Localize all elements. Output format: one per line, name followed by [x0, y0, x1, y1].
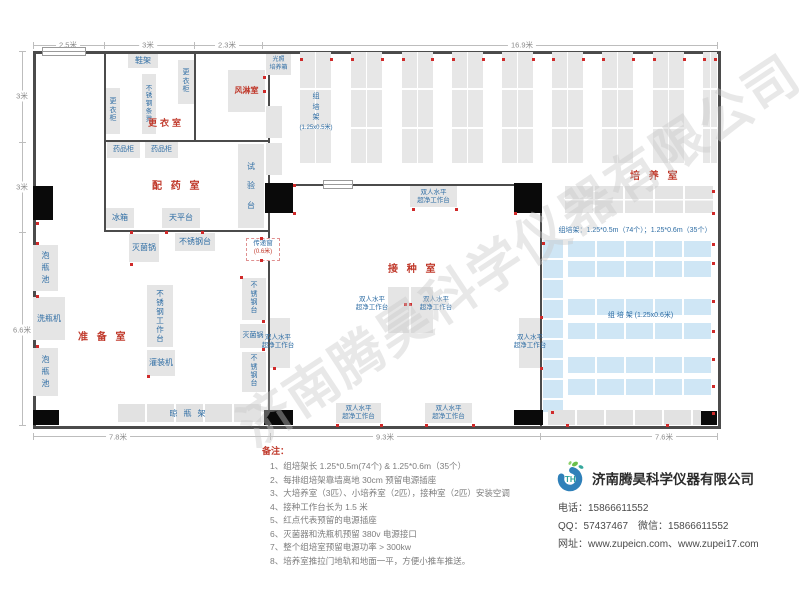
- blue-rack-label: 组 培 架 (1.25x0.6米): [568, 312, 713, 321]
- steel-workbench-label: 不锈钢工作台: [156, 289, 164, 343]
- sterilizer-1-label: 灭菌锅: [132, 243, 156, 253]
- wall-inoculation-culture: [540, 184, 542, 426]
- cbr-line2: 超净工作台: [514, 342, 547, 349]
- blue-rack-row-5: [568, 357, 713, 373]
- dim-left-3: 6.6米: [10, 325, 34, 336]
- clean-bench-center-left-label: 双人水平超净工作台: [350, 296, 394, 312]
- soak-pool-2-label: 泡瓶池: [41, 354, 49, 390]
- steel-table-v1-label: 不锈钢台: [250, 282, 257, 316]
- blue-rack-row-6: [568, 379, 713, 395]
- cbbl-label: 双人水平超净工作台: [342, 405, 375, 421]
- company-website: 网址：www.zupeicn.com、www.zupei17.com: [558, 536, 759, 554]
- wall-pharmacy-prep: [104, 230, 270, 232]
- dim-top-3: 2.3米: [215, 40, 239, 51]
- locker-left: 更衣柜: [106, 88, 120, 134]
- shoe-rack: 鞋架: [128, 54, 158, 68]
- cbbl-line2: 超净工作台: [342, 413, 375, 420]
- cbr-line1: 双人水平: [517, 334, 543, 341]
- steel-table-v2: 不锈钢台: [242, 352, 266, 392]
- room-label-pharmacy: 配 药 室: [152, 177, 203, 192]
- equipment-block-unlabeled-1: [266, 106, 282, 138]
- culture-rack-column-label: 组培架 (1.25x0.5米): [295, 92, 337, 132]
- room-label-inoculation: 接 种 室: [388, 260, 439, 275]
- rack-spec-text: 组培架：1.25*0.5m（74个）；1.25*0.6m（35个）: [552, 225, 718, 235]
- pass-window: 传递窗 (0.6米): [246, 238, 280, 261]
- wall-inoculation-top: [268, 184, 542, 186]
- cbbr-line2: 超净工作台: [432, 413, 465, 420]
- note-item: 2、每排组培架靠墙离地 30cm 预留电源插座: [270, 474, 510, 488]
- cbbr-line1: 双人水平: [436, 405, 462, 412]
- steel-table-v2-label: 不锈钢台: [250, 355, 257, 389]
- locker-right: 更衣柜: [178, 60, 194, 104]
- note-item: 5、红点代表预留的电源插座: [270, 514, 510, 528]
- sterilizer-1: 灭菌锅: [129, 234, 159, 262]
- note-item: 3、大培养室（3匹）、小培养室（2匹），接种室（2匹）安装空调: [270, 487, 510, 501]
- test-bench: 试验台: [238, 144, 264, 228]
- wall-changing-airshower: [194, 51, 196, 142]
- logo-letters: TH: [565, 475, 576, 484]
- locker-left-label: 更衣柜: [109, 98, 116, 123]
- cbcl-line2: 超净工作台: [356, 304, 389, 311]
- blue-rack-row-4: [568, 323, 713, 339]
- company-phone: 电话：15866611552: [558, 500, 759, 518]
- balance-table: 天平台: [162, 208, 200, 228]
- bottle-washer-label: 洗瓶机: [37, 314, 61, 324]
- company-qq-wechat: QQ：57437467 微信：15866611552: [558, 518, 759, 536]
- dim-bottom-2: 9.3米: [373, 432, 397, 443]
- balance-table-label: 天平台: [169, 213, 193, 223]
- light-incubator-label: 光照培养箱: [269, 57, 287, 73]
- fridge-label: 冰箱: [112, 213, 128, 223]
- clean-bench-bottom-left: 双人水平超净工作台: [336, 403, 381, 423]
- dim-bottom-1: 7.8米: [106, 432, 130, 443]
- air-shower-room: 风淋室: [228, 70, 265, 112]
- fridge: 冰箱: [106, 208, 134, 228]
- light-incubator-line1: 光照: [272, 57, 284, 63]
- bottle-washer: 洗瓶机: [33, 297, 65, 340]
- company-name: 济南腾昊科学仪器有限公司: [592, 468, 754, 488]
- cbl-line1: 双人水平: [265, 334, 291, 341]
- door-culture-bottomright: [701, 411, 717, 425]
- filling-machine: 灌装机: [147, 350, 175, 376]
- clean-bench-left-label: 双人水平超净工作台: [252, 334, 304, 350]
- dimension-line-top: [33, 45, 718, 46]
- light-incubator-line2: 培养箱: [269, 65, 287, 71]
- steel-workbench: 不锈钢工作台: [147, 285, 173, 347]
- blue-rack-row-2: [568, 261, 713, 277]
- culture-rack-column-4: [452, 52, 483, 163]
- blue-rack-row-1: [568, 241, 713, 257]
- dim-left-1: 3米: [13, 91, 31, 102]
- medicine-cabinet-1-label: 药品柜: [113, 146, 134, 154]
- cbbr-label: 双人水平超净工作台: [432, 405, 465, 421]
- bottle-drain-rack: 晾瓶架: [118, 404, 263, 422]
- note-item: 1、组培架长 1.25*0.5m(74个) & 1.25*0.6m（35个）: [270, 460, 510, 474]
- notes-title: 备注：: [262, 444, 510, 457]
- culture-blue-rack-vertical: [543, 240, 563, 412]
- pass-window-label: 传递窗: [247, 239, 279, 248]
- power-socket-dots: [0, 0, 3, 3]
- dim-top-2: 3米: [139, 40, 157, 51]
- dim-bottom-3: 7.6米: [652, 432, 676, 443]
- filling-machine-label: 灌装机: [149, 358, 173, 368]
- door-inoculation-bottomright: [514, 410, 543, 425]
- culture-rack-column-5: [502, 52, 533, 163]
- notes-section: 备注： 1、组培架长 1.25*0.5m(74个) & 1.25*0.6m（35…: [262, 444, 510, 568]
- clean-bench-top-line1: 双人水平: [421, 189, 447, 196]
- medicine-cabinet-2: 药品柜: [145, 142, 178, 158]
- soak-pool-1: 泡瓶池: [33, 245, 58, 291]
- room-label-prep: 准 备 室: [78, 328, 129, 343]
- culture-rack-column-8: [653, 52, 684, 163]
- soak-pool-2: 泡瓶池: [33, 348, 58, 396]
- air-shower-label: 风淋室: [235, 86, 259, 96]
- shoe-rack-label: 鞋架: [135, 56, 151, 66]
- note-item: 6、灭菌器和洗瓶机预留 380v 电源接口: [270, 528, 510, 542]
- floorplan-canvas: 济南腾昊科学仪器有限公司 2.5米 3米 2.3米 16.9米 3米 3米 6.…: [0, 0, 800, 600]
- pass-window-size: (0.6米): [247, 248, 279, 256]
- door-prep-entrance: [33, 186, 53, 220]
- clean-bench-top: 双人水平超净工作台: [410, 186, 457, 207]
- notes-list: 1、组培架长 1.25*0.5m(74个) & 1.25*0.6m（35个） 2…: [262, 460, 510, 568]
- door-prep-bottom: [33, 410, 59, 425]
- steel-table-top-label: 不锈钢台: [179, 237, 211, 247]
- clean-bench-right-label: 双人水平超净工作台: [504, 334, 556, 350]
- window-top-wall: [42, 47, 86, 56]
- culture-rack-column-3: [402, 52, 433, 163]
- culture-rack-column-2: [351, 52, 382, 163]
- medicine-cabinet-1: 药品柜: [107, 142, 140, 158]
- culture-rack-horizontal-gray: [565, 186, 713, 213]
- cbcr-line1: 双人水平: [423, 296, 449, 303]
- door-inoculation-topright: [514, 183, 542, 213]
- cbbl-line1: 双人水平: [346, 405, 372, 412]
- rack-v-size: (1.25x0.5米): [299, 125, 332, 131]
- cbcl-line1: 双人水平: [359, 296, 385, 303]
- company-logo: TH: [556, 460, 588, 494]
- medicine-cabinet-2-label: 药品柜: [151, 146, 172, 154]
- dimension-line-left: [22, 51, 23, 426]
- bottle-drain-rack-label: 晾瓶架: [170, 408, 212, 419]
- culture-bottom-gray-rack: [548, 410, 701, 425]
- steel-table-top: 不锈钢台: [175, 233, 215, 251]
- door-inoculation-bottomleft: [264, 410, 293, 425]
- culture-rack-column-9: [703, 52, 717, 163]
- steel-table-v1: 不锈钢台: [242, 278, 266, 320]
- rack-h-chars: 组 培 架: [608, 312, 633, 319]
- rack-h-size: (1.25x0.6米): [635, 312, 674, 319]
- light-incubator: 光照培养箱: [266, 54, 291, 75]
- cbcr-line2: 超净工作台: [420, 304, 453, 311]
- test-bench-label: 试验台: [247, 157, 255, 215]
- cbl-line2: 超净工作台: [262, 342, 295, 349]
- clean-bench-top-line2: 超净工作台: [417, 197, 450, 204]
- soak-pool-1-label: 泡瓶池: [41, 250, 49, 286]
- window-inoculation-wall: [323, 180, 353, 189]
- clean-bench-center-right-label: 双人水平超净工作台: [414, 296, 458, 312]
- equipment-block-unlabeled-2: [266, 143, 282, 175]
- dim-left-2: 3米: [13, 182, 31, 193]
- locker-right-label: 更衣柜: [182, 69, 189, 94]
- company-block: TH 济南腾昊科学仪器有限公司 电话：15866611552 QQ：574374…: [556, 460, 588, 499]
- company-contact: 电话：15866611552 QQ：57437467 微信：1586661155…: [558, 500, 759, 554]
- rack-v-chars: 组培架: [312, 92, 319, 124]
- clean-bench-top-label: 双人水平超净工作台: [417, 189, 450, 205]
- clean-bench-bottom-right: 双人水平超净工作台: [425, 403, 472, 423]
- note-item: 8、培养室推拉门地轨和地面一平，方便小推车推送。: [270, 555, 510, 569]
- note-item: 7、整个组培室预留电源功率 > 300kw: [270, 541, 510, 555]
- room-label-culture: 培 养 室: [630, 167, 681, 182]
- note-item: 4、接种工作台长为 1.5 米: [270, 501, 510, 515]
- dim-top-4: 16.9米: [508, 40, 536, 51]
- door-inoculation-topleft: [265, 183, 293, 213]
- room-label-changing: 更衣室: [148, 116, 184, 129]
- culture-rack-column-7: [602, 52, 633, 163]
- culture-rack-column-6: [552, 52, 583, 163]
